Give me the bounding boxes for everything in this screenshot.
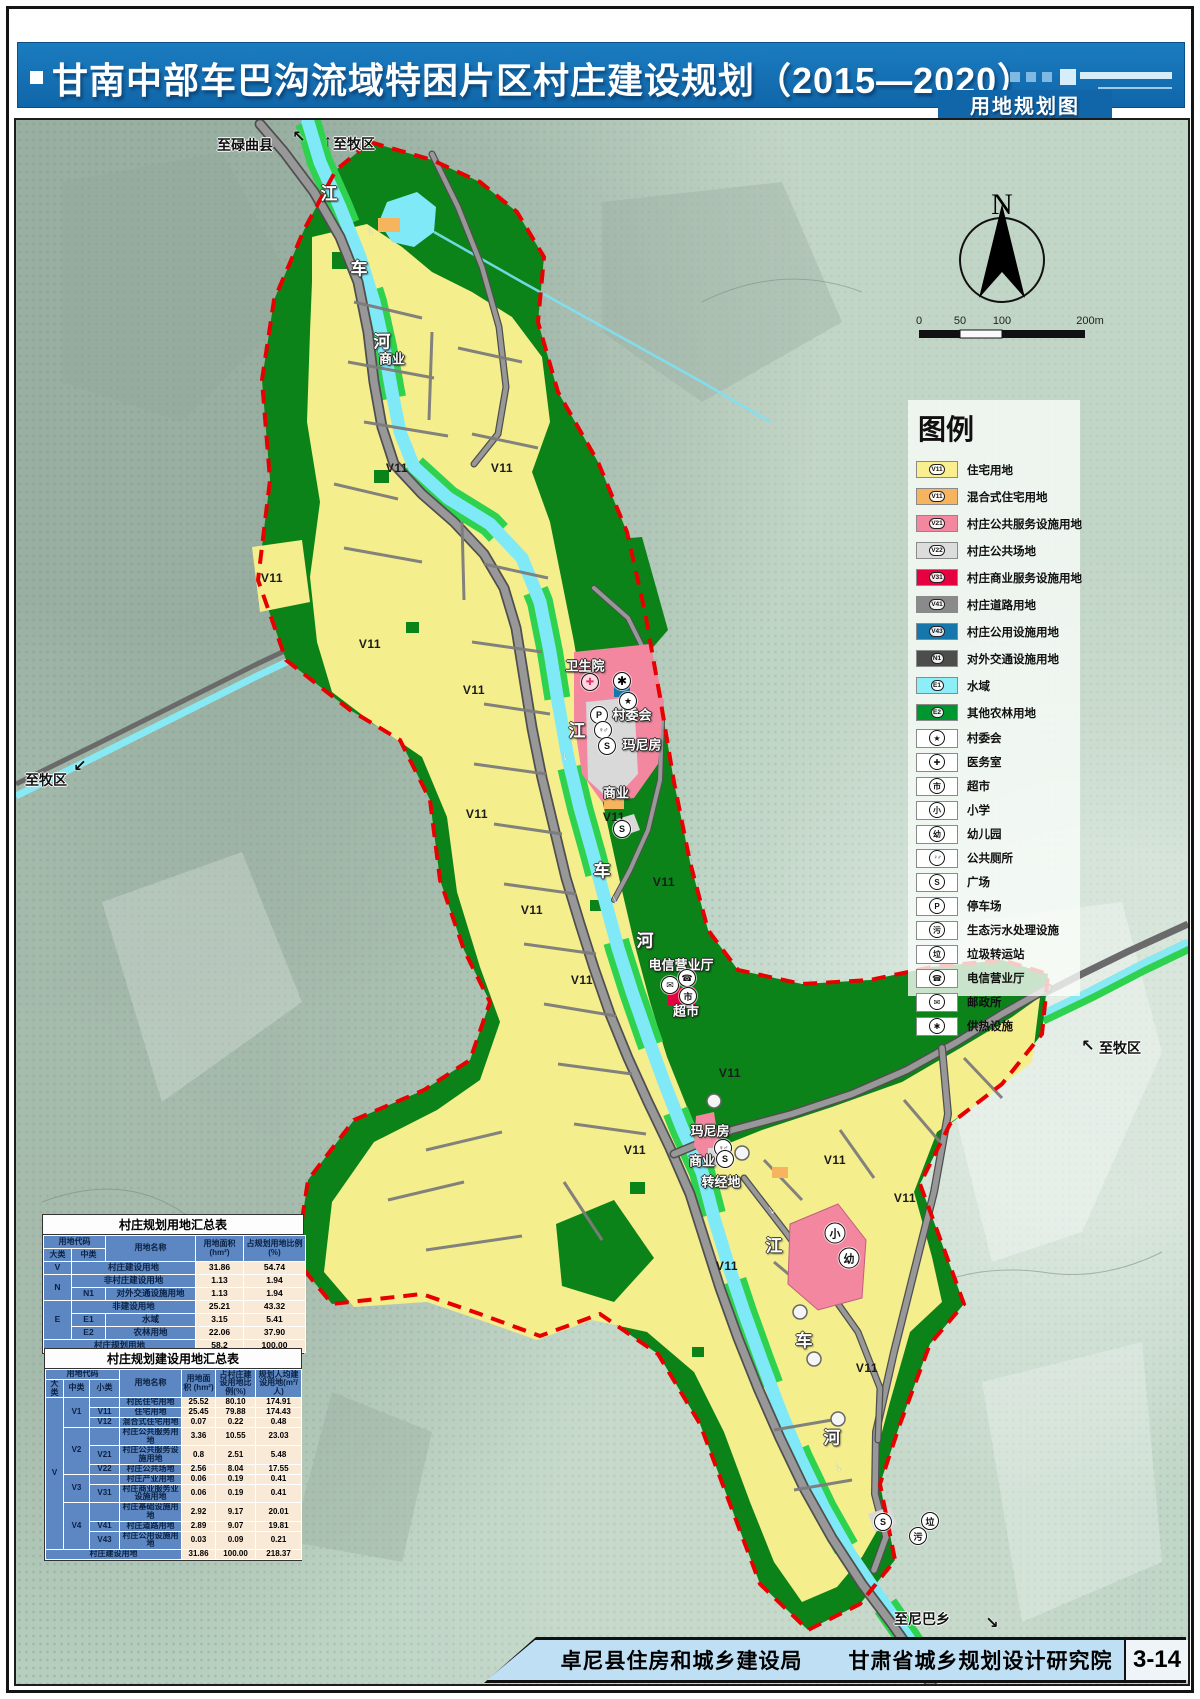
table-value-cell: 19.81 [256,1521,302,1531]
table-label-cell: 非村庄建设用地 [72,1275,196,1288]
legend-color-chip: V11 [916,461,958,478]
table-label-cell: N1 [72,1288,106,1301]
legend-icon-box: ★ [916,729,958,748]
广场-icon: S [929,874,945,890]
legend-label: 供热设施 [967,1018,1013,1034]
legend-code: V31 [929,572,945,583]
table-label-cell: V22 [90,1464,120,1474]
table-value-cell: 0.48 [256,1417,302,1427]
table-value-cell: 9.07 [216,1521,256,1531]
map-symbol-icon: 市 [679,987,697,1005]
legend-label: 水域 [967,678,990,694]
direction-arrow-icon: ↖ [292,127,305,147]
table-value-cell: 43.32 [244,1301,306,1314]
legend-icon-item: 垃垃圾转运站 [916,942,1072,966]
map-label-v11: V11 [653,875,675,889]
table-label-cell: 水域 [106,1314,196,1327]
table-value-cell: 10.55 [216,1427,256,1446]
legend-color-item: V31村庄商业服务设施用地 [916,564,1072,591]
table-value-cell: 0.03 [182,1531,216,1550]
legend-code: N1 [931,653,944,664]
sheet-number: 3-14 [1124,1640,1188,1680]
table-label-cell: E2 [72,1327,106,1340]
table-label-cell: 村庄建设用地 [46,1550,182,1560]
legend-icon-box: 市 [916,777,958,796]
table-label-cell: V11 [90,1408,120,1418]
legend-color-chip: V41 [916,596,958,613]
table-label-cell: 农林用地 [106,1327,196,1340]
table-label-cell: 村庄道路用地 [120,1521,182,1531]
table-value-cell: 54.74 [244,1262,306,1275]
legend-color-item: E2其他农林用地 [916,699,1072,726]
map-label-v11: V11 [359,637,381,651]
生态污水处理设施-icon: 污 [929,922,945,938]
legend-icon-item: ☎电信营业厅 [916,966,1072,990]
table-label-cell: N [44,1275,72,1301]
legend-color-chip: V31 [916,569,958,586]
table-header-cell: 用地代码 [44,1236,106,1249]
table-header-cell: 中类 [64,1379,90,1398]
legend-label: 对外交通设施用地 [967,651,1059,667]
map-symbol-icon: 垃 [921,1512,939,1530]
map-label-v11: V11 [491,461,513,475]
公共厕所-icon: ♀♂ [929,850,945,866]
table-label-cell: 村庄基础设施用地 [120,1503,182,1522]
land-use-summary-table: 村庄规划用地汇总表 用地代码用地名称用地面积 (hm²)占规划用地比例(%)大类… [42,1214,304,1354]
legend-label: 住宅用地 [967,462,1013,478]
legend-label: 村委会 [967,730,1002,746]
svg-text:100: 100 [993,315,1011,327]
table-header-cell: 大类 [44,1249,72,1262]
table-label-cell [90,1427,120,1446]
legend-code: V41 [929,599,945,610]
legend-color-item: V22村庄公共场地 [916,537,1072,564]
legend-color-item: V11混合式住宅用地 [916,483,1072,510]
table-header-cell: 占规划用地比例(%) [244,1236,306,1262]
table-header-cell: 用地名称 [120,1370,182,1398]
table-value-cell: 37.90 [244,1327,306,1340]
table-label-cell: V [44,1262,72,1275]
legend-icon-box: ☎ [916,969,958,988]
legend-icon-item: 幼幼儿园 [916,822,1072,846]
table-value-cell: 22.06 [196,1327,244,1340]
legend-label: 混合式住宅用地 [967,489,1048,505]
legend-code: V11 [929,464,944,475]
table-value-cell: 8.04 [216,1464,256,1474]
river-flow-arrow-icon: → [558,748,575,763]
map-label-text: 车 [594,857,611,882]
table-header-cell: 规划人均建设用地(m²/人) [256,1370,302,1398]
legend-color-item: V41村庄道路用地 [916,591,1072,618]
direction-arrow-icon: ↙ [73,756,86,776]
村委会-icon: ★ [929,730,945,746]
table-label-cell: 村庄公共服务用地 [120,1427,182,1446]
map-label-v11: V11 [856,1361,878,1375]
table-label-cell: 村庄公共场地 [120,1464,182,1474]
table-header-cell: 大类 [46,1379,64,1398]
map-label-text: 至碌曲县 [217,135,273,155]
table-value-cell: 0.41 [256,1484,302,1503]
table-value-cell: 0.09 [216,1531,256,1550]
legend-icon-item: 污生态污水处理设施 [916,918,1072,942]
legend-color-item: V11住宅用地 [916,456,1072,483]
map-label-text: 江 [321,180,338,205]
map-symbol-icon: ★ [619,692,637,710]
legend-icon-item: 市超市 [916,774,1072,798]
map-label-v11: V11 [624,1143,646,1157]
table-value-cell: 0.07 [182,1417,216,1427]
legend-icon-item: S广场 [916,870,1072,894]
legend-label: 村庄公共服务设施用地 [967,516,1082,532]
table-value-cell: 3.15 [196,1314,244,1327]
map-label-v11: V11 [386,461,408,475]
legend-color-chip: E1 [916,677,958,694]
table-value-cell: 0.41 [256,1474,302,1484]
mixed-residential-low [772,1167,788,1178]
电信营业厅-icon: ☎ [929,970,945,986]
table-value-cell: 25.52 [182,1398,216,1408]
map-label-text: 卫生院 [565,656,604,675]
table-value-cell: 0.19 [216,1474,256,1484]
table-label-cell: V31 [90,1484,120,1503]
legend-color-item: V43村庄公用设施用地 [916,618,1072,645]
map-symbol-icon: ✱ [613,672,631,690]
legend-label: 生态污水处理设施 [967,922,1059,938]
legend-icon-box: ♀♂ [916,849,958,868]
map-label-text: 玛尼房 [622,735,661,754]
legend-color-chip: N1 [916,650,958,667]
table-label-cell: 对外交通设施用地 [106,1288,196,1301]
legend-label: 村庄商业服务设施用地 [967,570,1082,586]
map-label-text: 车 [796,1327,813,1352]
table-label-cell: V3 [64,1474,90,1502]
svg-text:200m: 200m [1076,315,1104,327]
map-symbol-icon: S [874,1513,892,1531]
map-label-text: 商业 [689,1151,715,1170]
医务室-icon: ✚ [929,754,945,770]
land-use-map: N 0 50 100 200m 至碌曲县至牧区至牧区至牧区至尼巴乡江车河江车河江… [14,118,1190,1686]
map-label-text: 车 [351,255,368,280]
legend-label: 村庄公共场地 [967,543,1036,559]
table-label-cell: V4 [64,1503,90,1550]
legend-color-chip: V22 [916,542,958,559]
legend-color-item: E1水域 [916,672,1072,699]
map-label-v11: V11 [521,903,543,917]
legend-icon-item: P停车场 [916,894,1072,918]
legend-label: 小学 [967,802,990,818]
table-value-cell: 0.22 [216,1417,256,1427]
banner-deco-bar [1080,72,1172,79]
table-value-cell: 2.51 [216,1446,256,1465]
map-label-text: 转经地 [701,1172,740,1191]
legend-label: 医务室 [967,754,1002,770]
map-label-text: 至牧区 [1099,1038,1141,1058]
table-title: 村庄规划用地汇总表 [43,1215,303,1235]
table-label-cell: 村庄产业用地 [120,1474,182,1484]
table-value-cell: 23.03 [256,1427,302,1446]
table-label-cell: V1 [64,1398,90,1427]
north-arrow: N [960,188,1044,302]
legend-label: 其他农林用地 [967,705,1036,721]
direction-arrow-icon: ↖ [1081,1036,1094,1056]
direction-arrow-icon: ↘ [985,1613,998,1633]
legend-icon-item: ✱供热设施 [916,1014,1072,1038]
map-label-text: 至牧区 [333,134,375,154]
table-label-cell: 混合式住宅用地 [120,1417,182,1427]
table-value-cell: 20.01 [256,1503,302,1522]
legend-color-chip: V21 [916,515,958,532]
map-symbol-icon: S [613,820,631,838]
table-label-cell: 村庄公用设施用地 [120,1531,182,1550]
table-value-cell: 2.89 [182,1521,216,1531]
table-label-cell: V2 [64,1427,90,1474]
map-label-text: 河 [637,927,654,952]
table-label-cell: 村庄公共服务设施用地 [120,1446,182,1465]
legend-color-chip: E2 [916,704,958,721]
legend-icon-item: ♀♂公共厕所 [916,846,1072,870]
legend-label: 垃圾转运站 [967,946,1025,962]
legend-label: 幼儿园 [967,826,1002,842]
table-label-cell: 村庄商业服务业设施用地 [120,1484,182,1503]
map-symbol-icon: 污 [909,1527,927,1545]
停车场-icon: P [929,898,945,914]
map-label-v11: V11 [894,1191,916,1205]
legend-icon-box: ✚ [916,753,958,772]
map-symbol-icon: S [716,1150,734,1168]
map-label-text: 至尼巴乡 [894,1609,950,1629]
legend-label: 超市 [967,778,990,794]
table-label-cell: E [44,1301,72,1340]
banner-deco-square [30,71,43,84]
direction-arrow-icon: ↑ [324,133,332,151]
banner-deco [1026,72,1036,82]
map-label-v11: V11 [466,807,488,821]
table-value-cell: 31.86 [182,1550,216,1560]
table-label-cell: 村庄建设用地 [72,1262,196,1275]
供热设施-icon: ✱ [929,1018,945,1034]
plan-sheet: 甘南中部车巴沟流域特困片区村庄建设规划（2015—2020） 用地规划图 [0,0,1200,1699]
svg-text:50: 50 [954,315,966,327]
footer-org2: 甘肃省城乡规划设计研究院 [849,1645,1113,1675]
table-label-cell: V21 [90,1446,120,1465]
map-symbol-icon: 小 [825,1223,846,1244]
legend-icon-item: ★村委会 [916,726,1072,750]
footer-org1: 卓尼县住房和城乡建设局 [561,1645,803,1675]
map-symbol-icon: 幼 [839,1248,860,1269]
table-value-cell: 31.86 [196,1262,244,1275]
legend-icon-item: 小小学 [916,798,1072,822]
legend-icon-box: S [916,873,958,892]
table-value-cell: 174.43 [256,1408,302,1418]
banner-deco [1010,72,1020,82]
map-label-v11: V11 [824,1153,846,1167]
table-label-cell: V43 [90,1531,120,1550]
legend-label: 邮政所 [967,994,1002,1010]
垃圾转运站-icon: 垃 [929,946,945,962]
table-value-cell: 1.94 [244,1275,306,1288]
table-value-cell: 0.19 [216,1484,256,1503]
map-symbol-icon: ♀♂ [594,721,612,739]
map-symbol-icon: ✚ [581,673,599,691]
table-value-cell: 0.21 [256,1531,302,1550]
table-value-cell: 5.48 [256,1446,302,1465]
table-label-cell: V41 [90,1521,120,1531]
scale-bar: 0 50 100 200m [916,315,1104,338]
map-label-text: 至牧区 [25,770,67,790]
邮政所-icon: ✉ [929,994,945,1010]
page-title: 甘南中部车巴沟流域特困片区村庄建设规划（2015—2020） [52,52,1034,104]
legend-label: 停车场 [967,898,1002,914]
legend-color-item: V21村庄公共服务设施用地 [916,510,1072,537]
legend-icon-box: ✱ [916,1017,958,1036]
map-subtitle-box: 用地规划图 [938,90,1112,118]
map-label-v11: V11 [463,683,485,697]
legend-code: V22 [929,545,945,556]
banner-deco-line [1098,87,1172,89]
mixed-residential-patch-top [378,218,400,232]
table-value-cell: 174.91 [256,1398,302,1408]
table-value-cell: 100.00 [216,1550,256,1560]
map-symbol-icon: ☎ [678,969,696,987]
map-label-v11: V11 [719,1066,741,1080]
table-header-cell: 用地代码 [46,1370,120,1380]
小学-icon: 小 [929,802,945,818]
table-header-cell: 用地面积 (hm²) [196,1236,244,1262]
table-header-cell: 中类 [72,1249,106,1262]
table-value-cell: 2.92 [182,1503,216,1522]
table-value-cell: 0.06 [182,1484,216,1503]
legend-icon-box: ✉ [916,993,958,1012]
table-value-cell: 79.88 [216,1408,256,1418]
table-label-cell: E1 [72,1314,106,1327]
legend-icon-item: ✉邮政所 [916,990,1072,1014]
map-label-v11: V11 [261,571,283,585]
table-label-cell: 住宅用地 [120,1408,182,1418]
table-value-cell: 25.45 [182,1408,216,1418]
table-header-cell: 用地面积 (hm²) [182,1370,216,1398]
legend-code: V11 [929,491,944,502]
table-header-cell: 占村庄建设用地比例(%) [216,1370,256,1398]
footer-bar: 卓尼县住房和城乡建设局 甘肃省城乡规划设计研究院 [487,1640,1186,1680]
map-label-text: 商业 [379,349,405,368]
legend-label: 电信营业厅 [967,970,1025,986]
svg-text:0: 0 [916,315,922,327]
table-value-cell: 1.94 [244,1288,306,1301]
legend-icon-box: 幼 [916,825,958,844]
map-symbol-icon: S [598,737,616,755]
table-value-cell: 1.13 [196,1288,244,1301]
超市-icon: 市 [929,778,945,794]
banner-deco [1060,69,1076,85]
table-header-cell: 用地名称 [106,1236,196,1262]
legend-code: V21 [929,518,945,529]
table-value-cell: 25.21 [196,1301,244,1314]
table-label-cell: 非建设用地 [72,1301,196,1314]
legend-label: 村庄公用设施用地 [967,624,1059,640]
map-subtitle: 用地规划图 [970,90,1080,119]
legend-icon-box: 小 [916,801,958,820]
legend-label: 村庄道路用地 [967,597,1036,613]
legend-label: 广场 [967,874,990,890]
map-label-v11: V11 [571,973,593,987]
map-label-text: 玛尼房 [690,1121,729,1140]
table-label-cell [90,1474,120,1484]
map-symbol-icon: ✉ [661,976,679,994]
legend-color-chip: V43 [916,623,958,640]
map-label-text: 商业 [603,783,629,802]
legend-title: 图例 [918,408,1072,448]
table-value-cell: 0.8 [182,1446,216,1465]
map-label-text: 江 [766,1232,783,1257]
legend-code: E1 [931,680,944,691]
legend-icon-box: 污 [916,921,958,940]
legend-code: V43 [929,626,945,637]
map-label-v11: V11 [716,1259,738,1273]
table-label-cell: V [46,1398,64,1550]
table-label-cell: 村民住宅用地 [120,1398,182,1408]
banner-deco [1042,72,1052,82]
table-header-cell: 小类 [90,1379,120,1398]
table-value-cell: 5.41 [244,1314,306,1327]
table-value-cell: 9.17 [216,1503,256,1522]
map-label-text: 江 [569,717,586,742]
legend-color-item: N1对外交通设施用地 [916,645,1072,672]
table-label-cell [90,1398,120,1408]
legend-panel: 图例 V11住宅用地V11混合式住宅用地V21村庄公共服务设施用地V22村庄公共… [908,400,1080,996]
legend-icon-box: P [916,897,958,916]
table-label-cell [90,1503,120,1522]
north-label: N [991,188,1013,221]
table-title: 村庄规划建设用地汇总表 [45,1349,301,1369]
table-value-cell: 17.55 [256,1464,302,1474]
legend-color-chip: V11 [916,488,958,505]
construction-land-summary-table: 村庄规划建设用地汇总表 用地代码用地名称用地面积 (hm²)占村庄建设用地比例(… [44,1348,302,1561]
幼儿园-icon: 幼 [929,826,945,842]
legend-label: 公共厕所 [967,850,1013,866]
table-value-cell: 218.37 [256,1550,302,1560]
legend-code: E2 [931,707,944,718]
map-label-text: 河 [824,1424,841,1449]
table-value-cell: 80.10 [216,1398,256,1408]
legend-icon-item: ✚医务室 [916,750,1072,774]
table-value-cell: 3.36 [182,1427,216,1446]
table-value-cell: 2.56 [182,1464,216,1474]
table-value-cell: 0.06 [182,1474,216,1484]
legend-icon-box: 垃 [916,945,958,964]
table-value-cell: 1.13 [196,1275,244,1288]
table-label-cell: V12 [90,1417,120,1427]
